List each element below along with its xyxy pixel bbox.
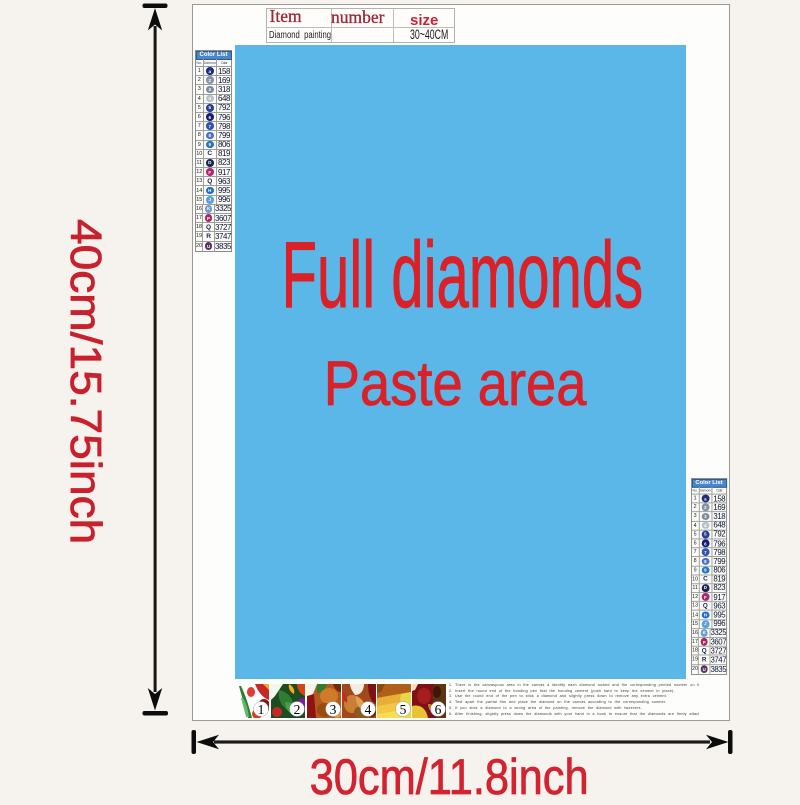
svg-text:2: 2 [294, 702, 301, 717]
svg-text:1: 1 [258, 702, 265, 717]
svg-text:6: 6 [435, 702, 442, 717]
svg-text:3: 3 [330, 702, 337, 717]
svg-text:5: 5 [400, 702, 407, 717]
svg-text:4: 4 [365, 702, 372, 717]
